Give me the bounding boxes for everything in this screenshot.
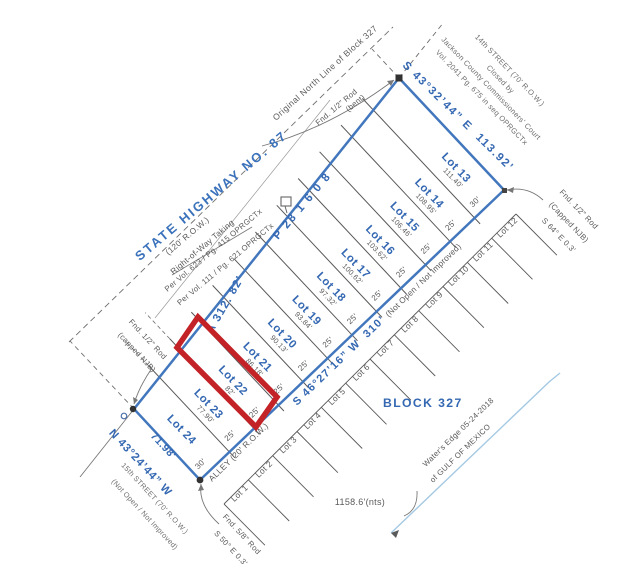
svg-text:1158.6'(nts): 1158.6'(nts) bbox=[335, 497, 385, 507]
svg-text:BLOCK 327: BLOCK 327 bbox=[383, 396, 463, 410]
